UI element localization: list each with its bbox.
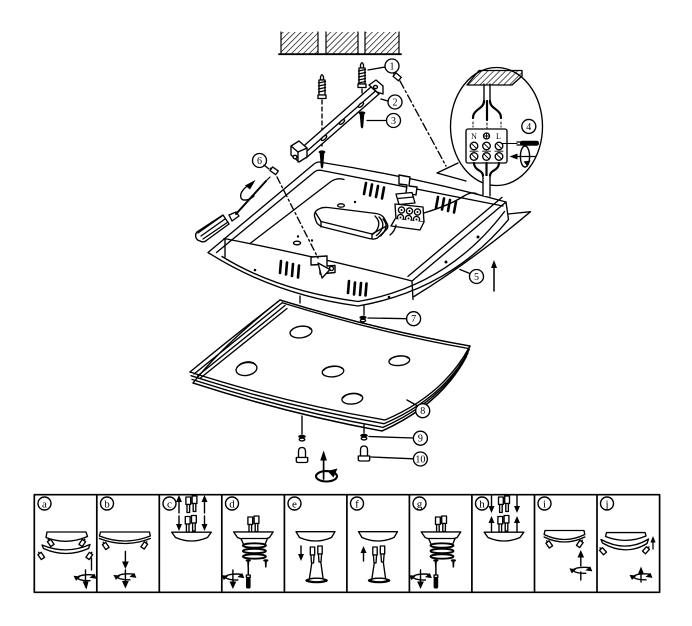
svg-text:4: 4 bbox=[526, 122, 531, 133]
svg-text:g: g bbox=[417, 499, 423, 511]
svg-text:f: f bbox=[355, 499, 359, 511]
svg-text:e: e bbox=[292, 499, 297, 511]
svg-text:N: N bbox=[471, 132, 477, 141]
svg-text:3: 3 bbox=[391, 116, 396, 127]
svg-text:6: 6 bbox=[257, 156, 262, 167]
svg-text:5: 5 bbox=[474, 272, 479, 283]
svg-text:L: L bbox=[496, 132, 501, 141]
svg-text:d: d bbox=[229, 499, 235, 511]
svg-text:9: 9 bbox=[418, 434, 423, 445]
svg-text:i: i bbox=[543, 499, 546, 511]
svg-text:10: 10 bbox=[415, 455, 425, 466]
svg-text:c: c bbox=[167, 499, 172, 511]
svg-text:j: j bbox=[604, 499, 608, 511]
svg-text:1: 1 bbox=[390, 62, 395, 73]
svg-text:a: a bbox=[42, 499, 47, 511]
svg-text:2: 2 bbox=[393, 98, 398, 109]
svg-text:7: 7 bbox=[411, 314, 416, 325]
svg-text:8: 8 bbox=[420, 406, 425, 417]
svg-text:h: h bbox=[479, 499, 485, 511]
svg-text:b: b bbox=[104, 499, 110, 511]
